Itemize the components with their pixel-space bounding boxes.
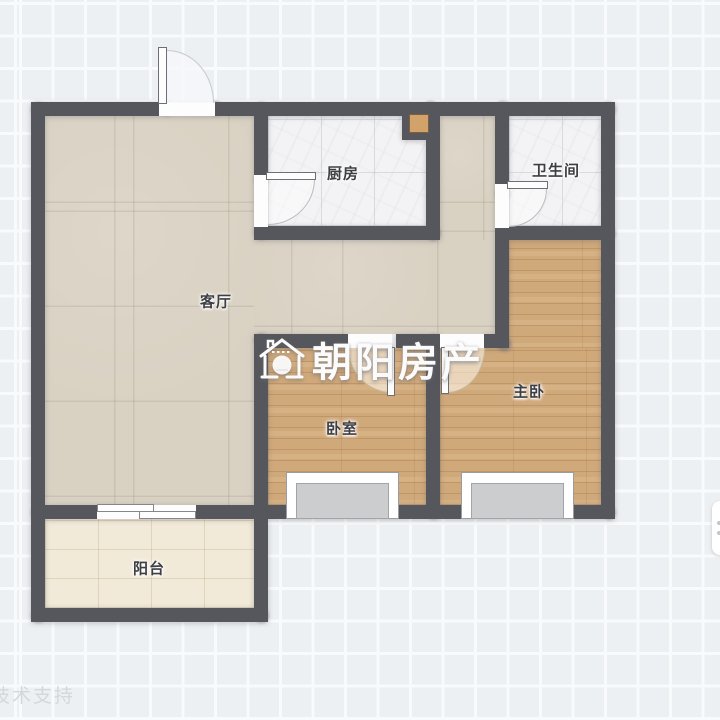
floorplan-canvas: 客厅 厨房 卫生间 主卧 卧室 阳台 朝阳房产 技术支持 [0, 0, 720, 720]
room-label-bedroom: 卧室 [326, 418, 358, 439]
entrance-door-leaf [158, 47, 167, 104]
room-label-kitchen: 厨房 [327, 163, 359, 184]
kitchen-door-threshold [254, 175, 268, 227]
side-drag-handle[interactable] [712, 501, 720, 555]
support-text: 技术支持 [0, 681, 75, 708]
wall-bathroom-bottom [495, 226, 615, 240]
bathroom-door-threshold [495, 184, 509, 228]
wall-kitchen-bottom [254, 226, 440, 240]
bathroom-door-leaf [507, 181, 548, 189]
watermark-brand-text: 朝阳房产 [312, 330, 484, 388]
bedroom-window-sill [296, 483, 389, 519]
wall-balcony-right [254, 505, 268, 622]
kitchen-flue [409, 114, 429, 133]
balcony-slider-panel-right [139, 511, 196, 519]
wall-right [601, 102, 615, 519]
room-label-master: 主卧 [513, 381, 545, 402]
entrance-door-threshold [159, 102, 215, 116]
watermark: 朝阳房产 [258, 330, 484, 388]
room-label-bath: 卫生间 [532, 160, 580, 181]
wall-left [31, 102, 45, 622]
wall-balcony-bottom [31, 608, 268, 622]
room-label-balcony: 阳台 [133, 558, 165, 579]
house-badge-icon [258, 337, 306, 381]
wall-bedrooms-top-c [484, 334, 509, 348]
kitchen-door-leaf [266, 172, 316, 180]
room-label-living: 客厅 [200, 291, 232, 312]
wall-top [31, 102, 615, 116]
master-window-sill [471, 483, 564, 519]
